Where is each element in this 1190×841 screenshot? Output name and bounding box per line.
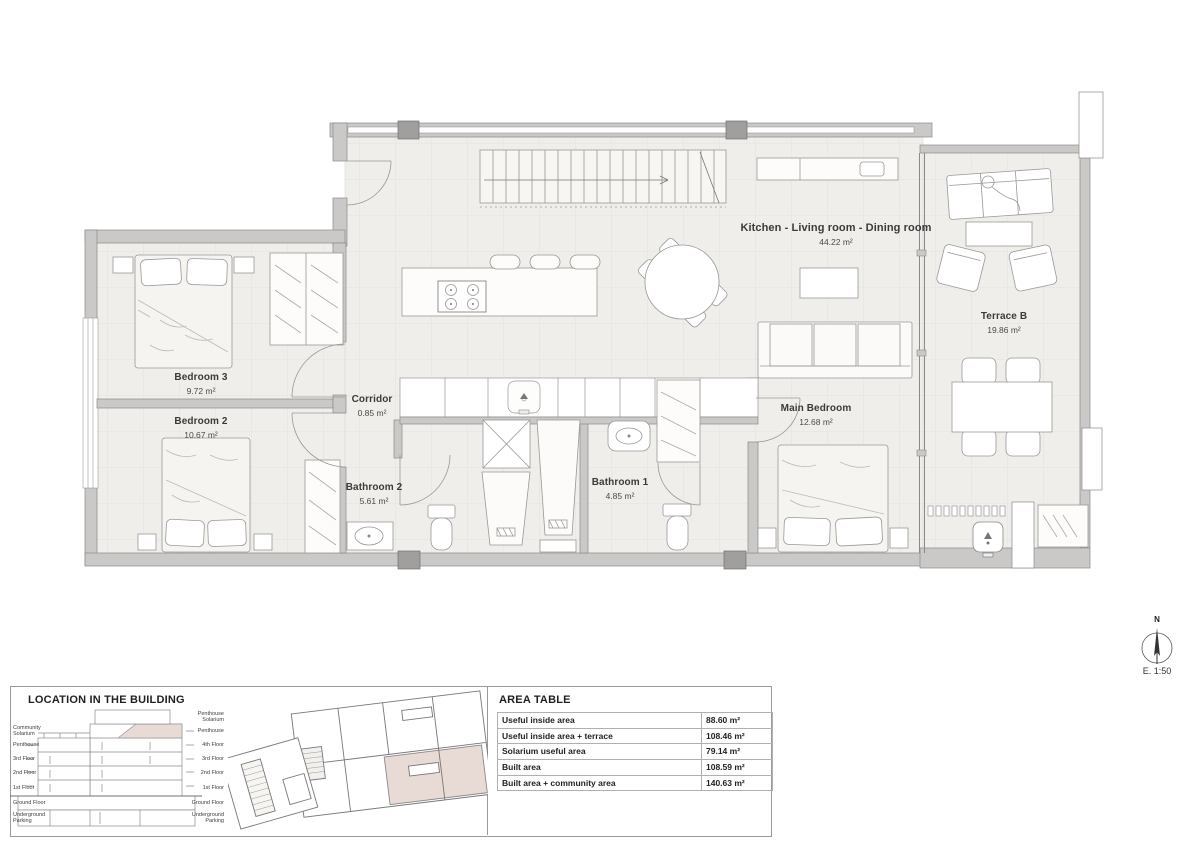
area-table-row: Useful inside area 88.60 m² — [498, 713, 773, 729]
room-area: 44.22 m² — [706, 237, 966, 247]
area-value: 140.63 m² — [702, 775, 773, 791]
north-label: N — [1149, 615, 1165, 624]
corridor-washbasin — [508, 381, 540, 414]
area-table-row: Built area 108.59 m² — [498, 759, 773, 775]
kitchen-counter — [757, 158, 898, 180]
room-label-bathroom1: Bathroom 1 4.85 m² — [560, 477, 680, 501]
floor-label: Ground Floor — [13, 800, 51, 806]
vanity-sink — [608, 421, 650, 451]
floor-label: Penthouse Solarium — [182, 711, 224, 724]
coffee-table — [800, 268, 858, 298]
area-table-row: Built area + community area 140.63 m² — [498, 775, 773, 791]
floor-plan-sheet: Kitchen - Living room - Dining room 44.2… — [0, 0, 1190, 841]
toilet — [663, 504, 691, 550]
floor-label: Penthouse — [13, 742, 51, 748]
room-area: 4.85 m² — [560, 491, 680, 501]
room-label-bathroom2: Bathroom 2 5.61 m² — [314, 482, 434, 506]
floor-label: Underground Parking — [182, 812, 224, 825]
terrace-pillar — [1012, 502, 1034, 568]
room-name: Bedroom 2 — [111, 416, 291, 427]
area-value: 108.46 m² — [702, 728, 773, 744]
room-label-kitchen-living: Kitchen - Living room - Dining room 44.2… — [706, 222, 966, 247]
room-name: Main Bedroom — [726, 403, 906, 414]
area-label: Solarium useful area — [498, 744, 702, 760]
area-label: Built area — [498, 759, 702, 775]
room-label-corridor: Corridor 0.85 m² — [312, 394, 432, 418]
core-cabinets — [400, 378, 758, 424]
area-label: Useful inside area — [498, 713, 702, 729]
room-area: 5.61 m² — [314, 496, 434, 506]
hob — [438, 281, 486, 312]
floor-label: Underground Parking — [13, 812, 51, 825]
shower — [482, 472, 530, 545]
area-table-row: Useful inside area + terrace 108.46 m² — [498, 728, 773, 744]
floor-label: 2nd Floor — [13, 770, 51, 776]
floor-label: 1st Floor — [13, 785, 51, 791]
room-name: Terrace B — [924, 311, 1084, 322]
room-label-bedroom3: Bedroom 3 9.72 m² — [111, 372, 291, 396]
bed-main-bedroom — [758, 445, 908, 552]
building-key-plan — [228, 688, 488, 838]
floor-label: Ground Floor — [182, 800, 224, 806]
room-name: Kitchen - Living room - Dining room — [706, 222, 966, 234]
area-value: 79.14 m² — [702, 744, 773, 760]
area-label: Built area + community area — [498, 775, 702, 791]
vanity-sink — [347, 522, 393, 550]
room-area: 19.86 m² — [924, 325, 1084, 335]
area-table-row: Solarium useful area 79.14 m² — [498, 744, 773, 760]
floor-label: 2nd Floor — [182, 770, 224, 776]
area-value: 88.60 m² — [702, 713, 773, 729]
floor-label: 3rd Floor — [13, 756, 51, 762]
floor-label: Community Solarium — [13, 725, 51, 738]
room-label-bedroom2: Bedroom 2 10.67 m² — [111, 416, 291, 440]
sofa — [758, 322, 912, 378]
room-name: Bathroom 2 — [314, 482, 434, 493]
floor-label: 4th Floor — [182, 742, 224, 748]
floor-label: Penthouse — [182, 728, 224, 734]
floor-label: 1st Floor — [182, 785, 224, 791]
scale-label: E. 1:50 — [1127, 666, 1187, 676]
room-area: 12.68 m² — [726, 417, 906, 427]
room-area: 9.72 m² — [111, 386, 291, 396]
room-label-main-bedroom: Main Bedroom 12.68 m² — [726, 403, 906, 427]
room-area: 10.67 m² — [111, 430, 291, 440]
terrace-sink — [973, 522, 1003, 557]
room-area: 0.85 m² — [312, 408, 432, 418]
toilet — [428, 505, 455, 550]
bar-stools — [490, 255, 600, 269]
room-label-terrace-b: Terrace B 19.86 m² — [924, 311, 1084, 335]
terrace-coffee-table — [966, 222, 1032, 246]
area-table: Useful inside area 88.60 m² Useful insid… — [497, 712, 773, 791]
stairs — [480, 150, 726, 207]
area-value: 108.59 m² — [702, 759, 773, 775]
area-label: Useful inside area + terrace — [498, 728, 702, 744]
room-name: Bathroom 1 — [560, 477, 680, 488]
room-name: Bedroom 3 — [111, 372, 291, 383]
duct-shaft — [483, 420, 530, 468]
room-name: Corridor — [312, 394, 432, 405]
area-table-title: AREA TABLE — [499, 694, 571, 706]
terrace-sofa — [947, 168, 1054, 219]
floor-label: 3rd Floor — [182, 756, 224, 762]
